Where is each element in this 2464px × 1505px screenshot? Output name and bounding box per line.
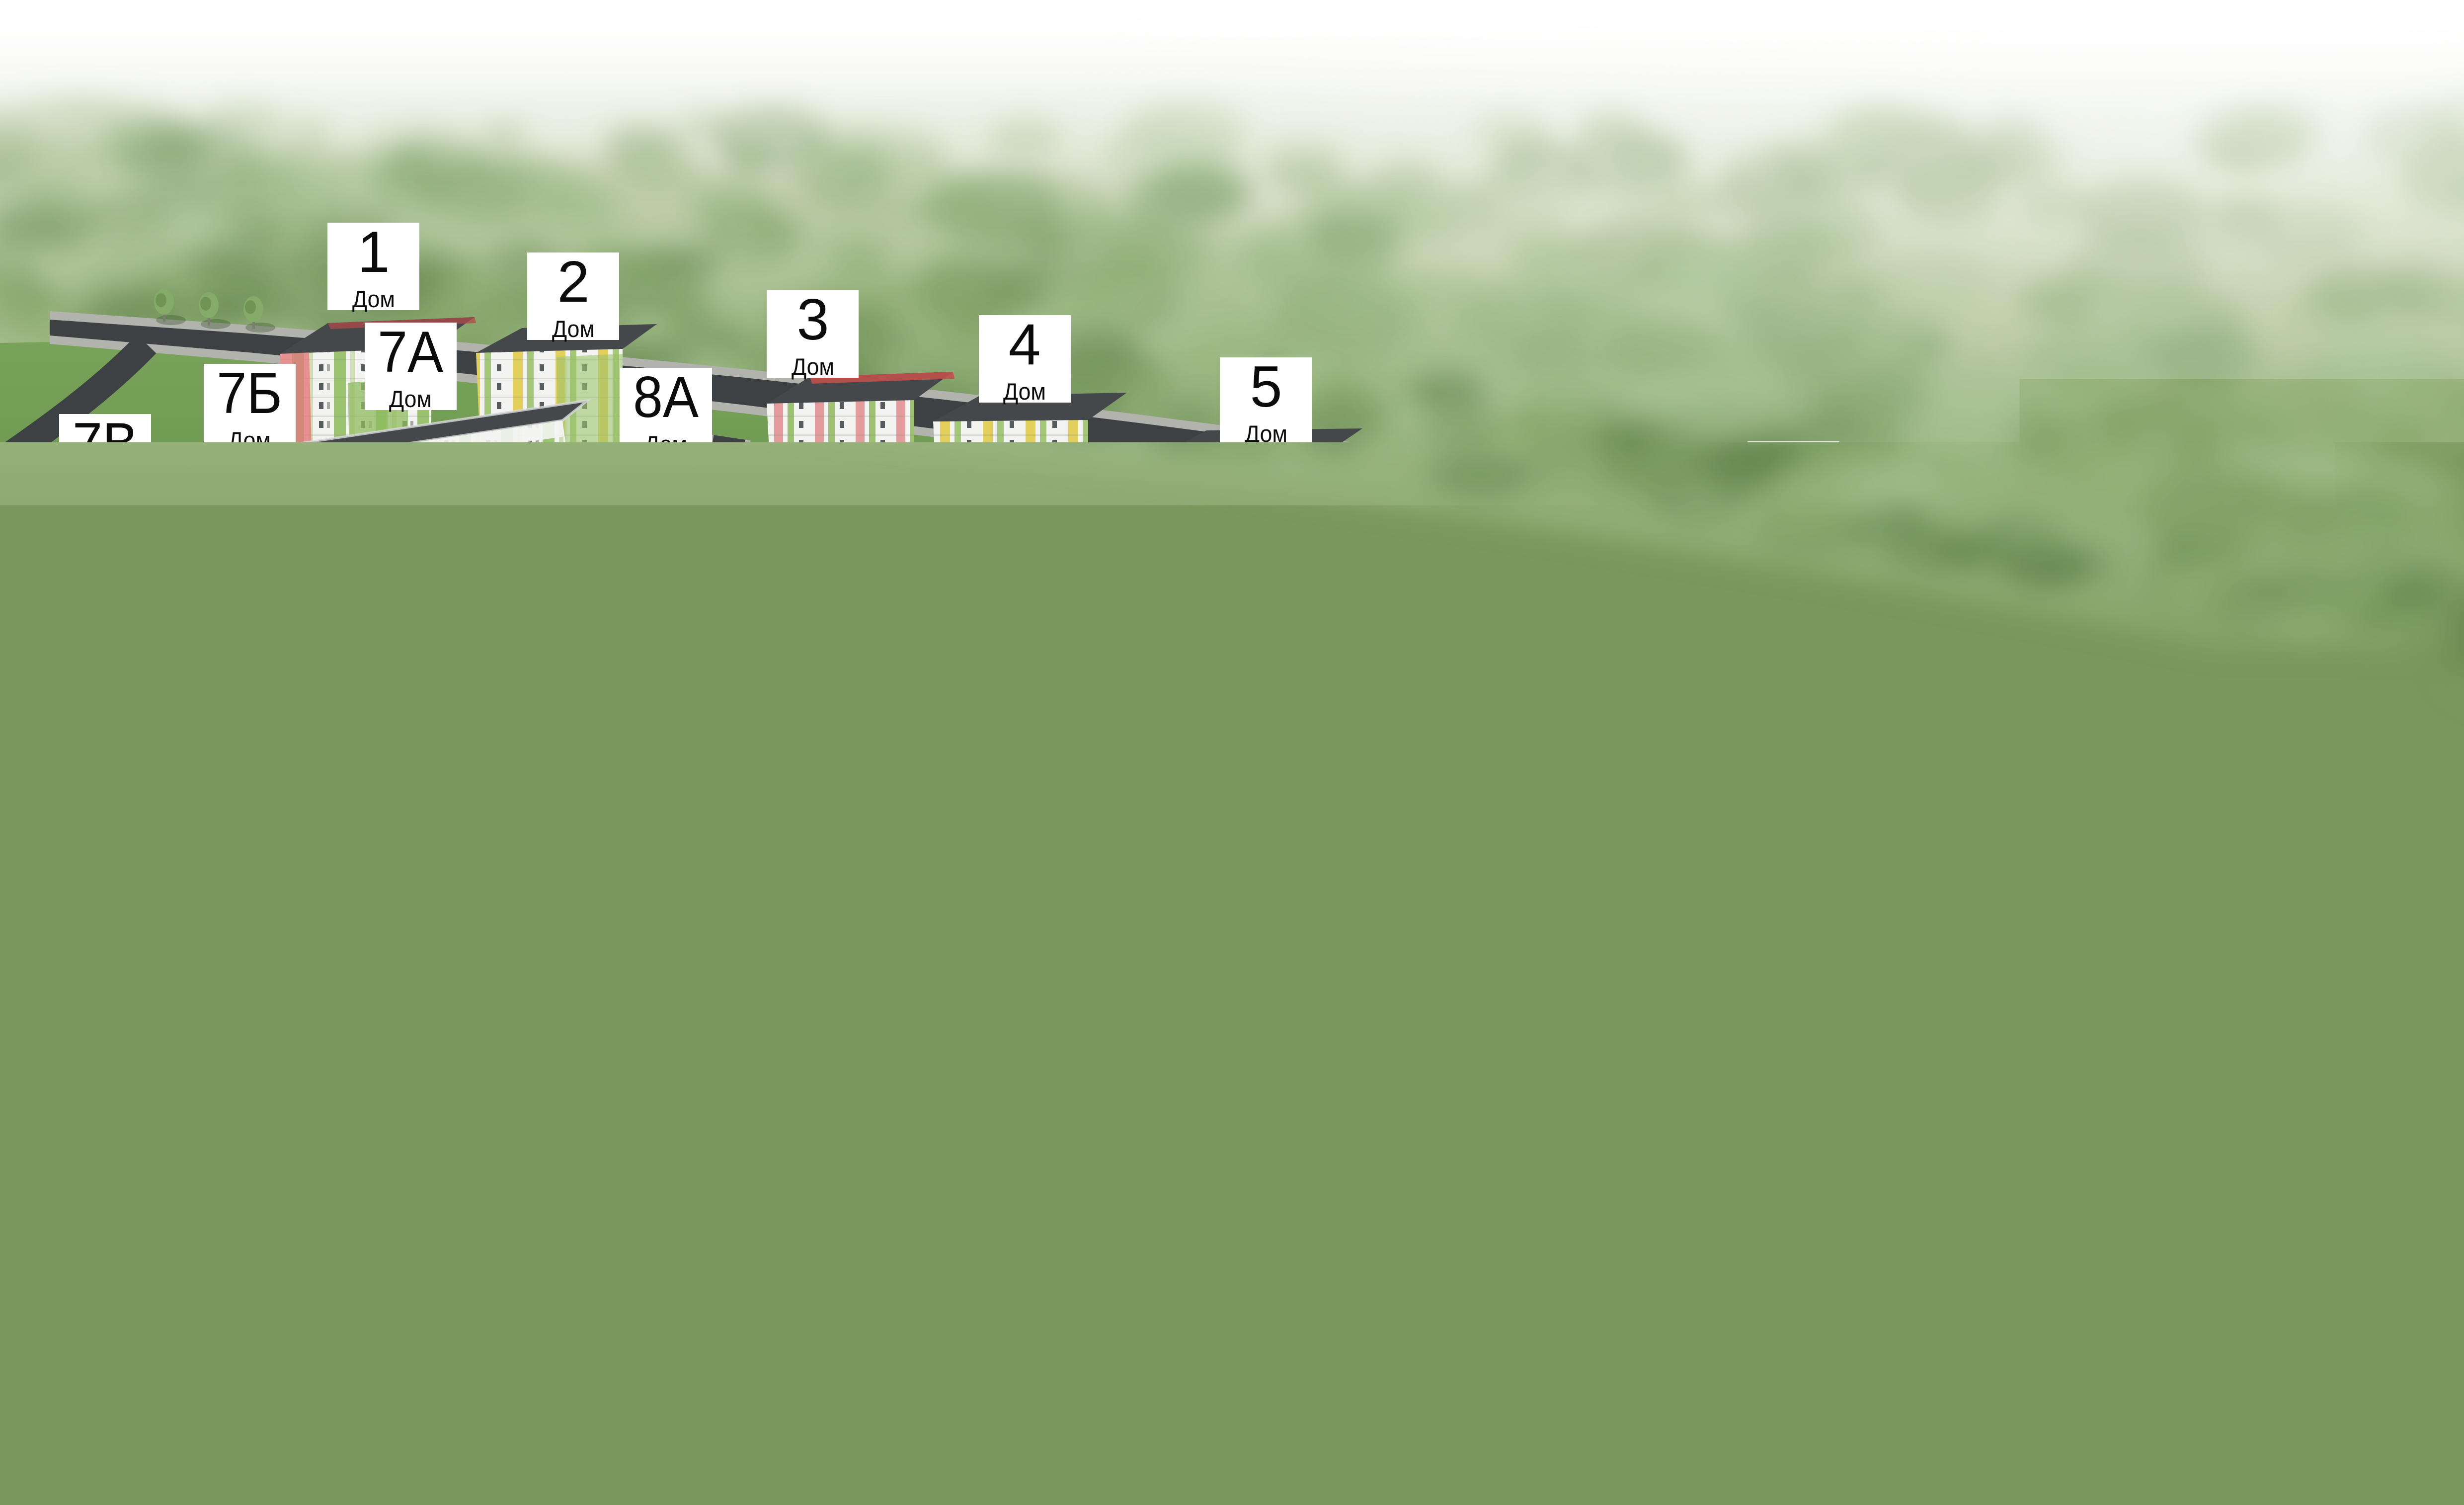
svg-text:Дом: Дом xyxy=(228,427,271,453)
svg-text:Дом: Дом xyxy=(1245,420,1287,447)
svg-text:11Б: 11Б xyxy=(1525,642,1611,707)
svg-text:Дом: Дом xyxy=(1772,504,1815,531)
svg-text:7А: 7А xyxy=(378,319,443,384)
svg-text:9Б: 9Б xyxy=(608,584,674,649)
svg-text:Дом: Дом xyxy=(644,431,687,457)
svg-text:11А: 11А xyxy=(1685,609,1771,674)
svg-text:8А: 8А xyxy=(633,364,699,429)
svg-text:8В: 8В xyxy=(310,513,376,578)
svg-text:10В: 10В xyxy=(943,642,1029,707)
svg-text:11В: 11В xyxy=(1488,771,1573,836)
svg-text:3: 3 xyxy=(796,287,829,352)
svg-text:Перспектива с птичего полета: Перспектива с птичего полета xyxy=(189,1399,725,1435)
svg-text:Дом: Дом xyxy=(2074,980,2117,1006)
svg-text:1: 1 xyxy=(357,219,390,284)
svg-text:7В: 7В xyxy=(73,411,138,476)
svg-text:Дом: Дом xyxy=(321,580,364,606)
svg-text:Дом: Дом xyxy=(2106,876,2149,903)
svg-text:Дом: Дом xyxy=(792,353,834,380)
svg-text:2: 2 xyxy=(557,249,589,314)
svg-text:Дом: Дом xyxy=(2238,763,2281,789)
svg-text:Дом: Дом xyxy=(84,477,127,503)
svg-text:10А: 10А xyxy=(1191,482,1276,547)
svg-text:Дом: Дом xyxy=(964,708,1007,735)
svg-text:5: 5 xyxy=(1250,354,1282,419)
svg-text:Дом: Дом xyxy=(620,651,662,677)
svg-text:Дом: Дом xyxy=(352,286,395,312)
svg-text:8Б: 8Б xyxy=(494,449,559,514)
svg-text:10Б: 10Б xyxy=(1077,564,1163,629)
svg-text:7Б: 7Б xyxy=(217,360,282,425)
svg-text:12Б: 12Б xyxy=(2085,810,2170,875)
svg-text:6: 6 xyxy=(1777,438,1810,503)
svg-text:Дом: Дом xyxy=(1003,378,1046,405)
svg-text:Дом: Дом xyxy=(1547,708,1590,735)
svg-text:4: 4 xyxy=(1008,312,1040,377)
svg-text:12В: 12В xyxy=(2053,914,2139,979)
svg-text:Дом: Дом xyxy=(1099,631,1141,657)
svg-text:Дом: Дом xyxy=(505,516,548,542)
svg-text:Дом: Дом xyxy=(1707,675,1749,702)
svg-text:12А: 12А xyxy=(2217,696,2303,761)
svg-text:Дом: Дом xyxy=(763,584,805,610)
svg-text:Дом: Дом xyxy=(1509,838,1552,864)
svg-text:Дом: Дом xyxy=(1212,548,1255,575)
svg-text:Дом: Дом xyxy=(552,316,595,342)
svg-text:9А: 9А xyxy=(751,517,817,582)
svg-text:Дом: Дом xyxy=(389,386,432,412)
